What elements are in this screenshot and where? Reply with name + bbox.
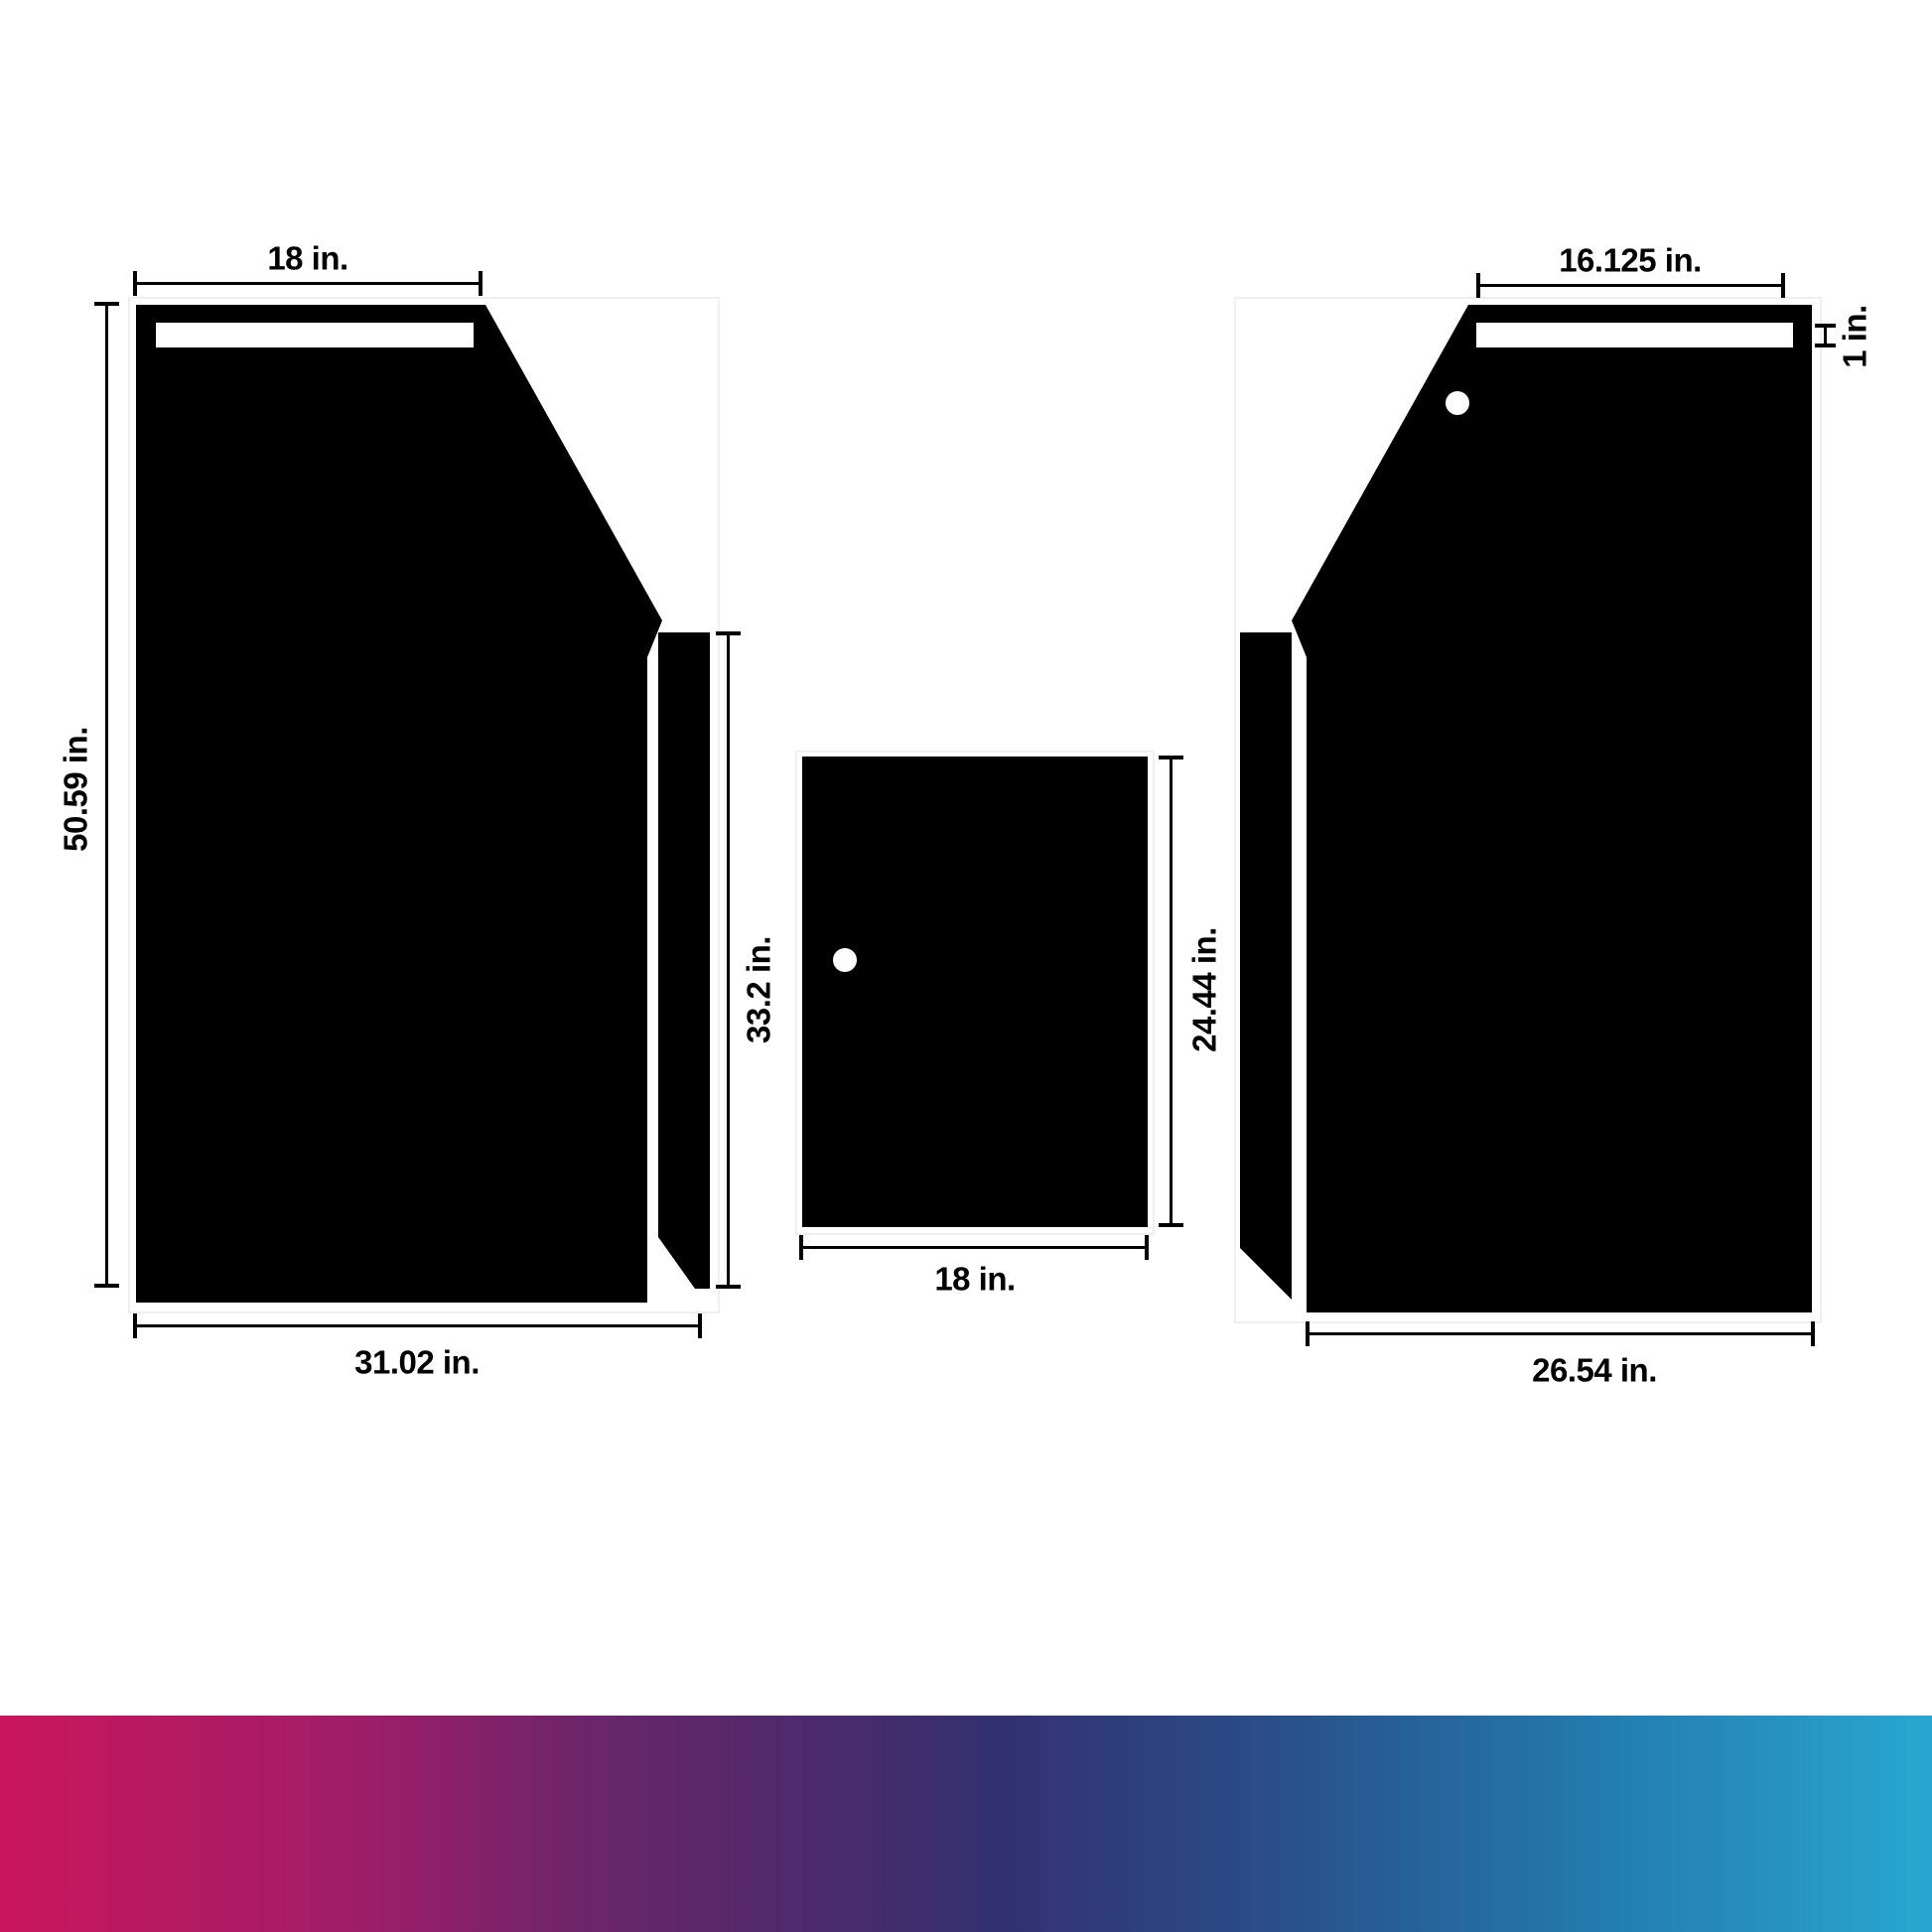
right-side-strip-shape	[1240, 632, 1292, 1300]
dimension-tick	[1306, 1321, 1310, 1346]
dimension-label-left-strip-height: 33.2 in.	[743, 936, 775, 1043]
footer-gradient-bar: GetBranded·com NCR SS23 (6623)	[0, 1716, 1932, 1932]
dimension-tick	[94, 302, 119, 306]
dimension-tick	[1476, 273, 1480, 298]
dimension-tick	[1145, 1235, 1149, 1260]
right-panel-screw-hole	[1446, 391, 1469, 415]
dimension-line-right-top-width	[1476, 284, 1785, 287]
right-panel-handle-slot	[1476, 323, 1793, 347]
dimension-label-center-width: 18 in.	[934, 1263, 1015, 1296]
dimension-tick	[1159, 1223, 1183, 1227]
dimension-label-left-height: 50.59 in.	[60, 727, 92, 852]
dimension-tick	[698, 1313, 702, 1338]
dimension-tick	[133, 271, 137, 296]
dimension-label-center-height: 24.44 in.	[1188, 927, 1221, 1052]
dimension-line-left-bottom-width	[133, 1324, 702, 1327]
dimension-line-right-bottom-width	[1306, 1332, 1815, 1335]
dimension-line-left-top-width	[133, 282, 483, 285]
dimension-line-left-strip-height	[727, 631, 730, 1289]
dimension-tick	[479, 271, 483, 296]
dimension-label-left-bottom-width: 31.02 in.	[354, 1346, 480, 1379]
template-diagram: 18 in. 50.59 in. 31.02 in. 33.2 in. 24.4…	[0, 0, 1932, 1932]
dimension-tick	[1811, 1321, 1815, 1346]
dimension-line-center-height	[1170, 756, 1173, 1227]
dimension-tick	[1781, 273, 1785, 298]
center-panel-screw-hole	[833, 948, 857, 972]
dimension-line-center-width	[799, 1246, 1149, 1249]
dimension-line-left-height	[105, 302, 108, 1288]
dimension-tick	[1815, 324, 1836, 328]
dimension-label-right-top-width: 16.125 in.	[1559, 244, 1702, 277]
dimension-tick	[716, 1285, 741, 1289]
left-side-strip-shape	[658, 632, 710, 1289]
dimension-tick	[1815, 344, 1836, 347]
dimension-tick	[94, 1284, 119, 1288]
center-panel-shape	[802, 757, 1148, 1227]
left-panel-handle-slot	[156, 323, 474, 347]
dimension-tick	[1159, 756, 1183, 759]
dimension-tick	[716, 631, 741, 635]
dimension-label-left-top-width: 18 in.	[267, 242, 347, 275]
dimension-label-right-slot-height: 1 in.	[1839, 305, 1871, 368]
dimension-tick	[133, 1313, 137, 1338]
dimension-label-right-bottom-width: 26.54 in.	[1532, 1354, 1657, 1387]
dimension-tick	[799, 1235, 803, 1260]
